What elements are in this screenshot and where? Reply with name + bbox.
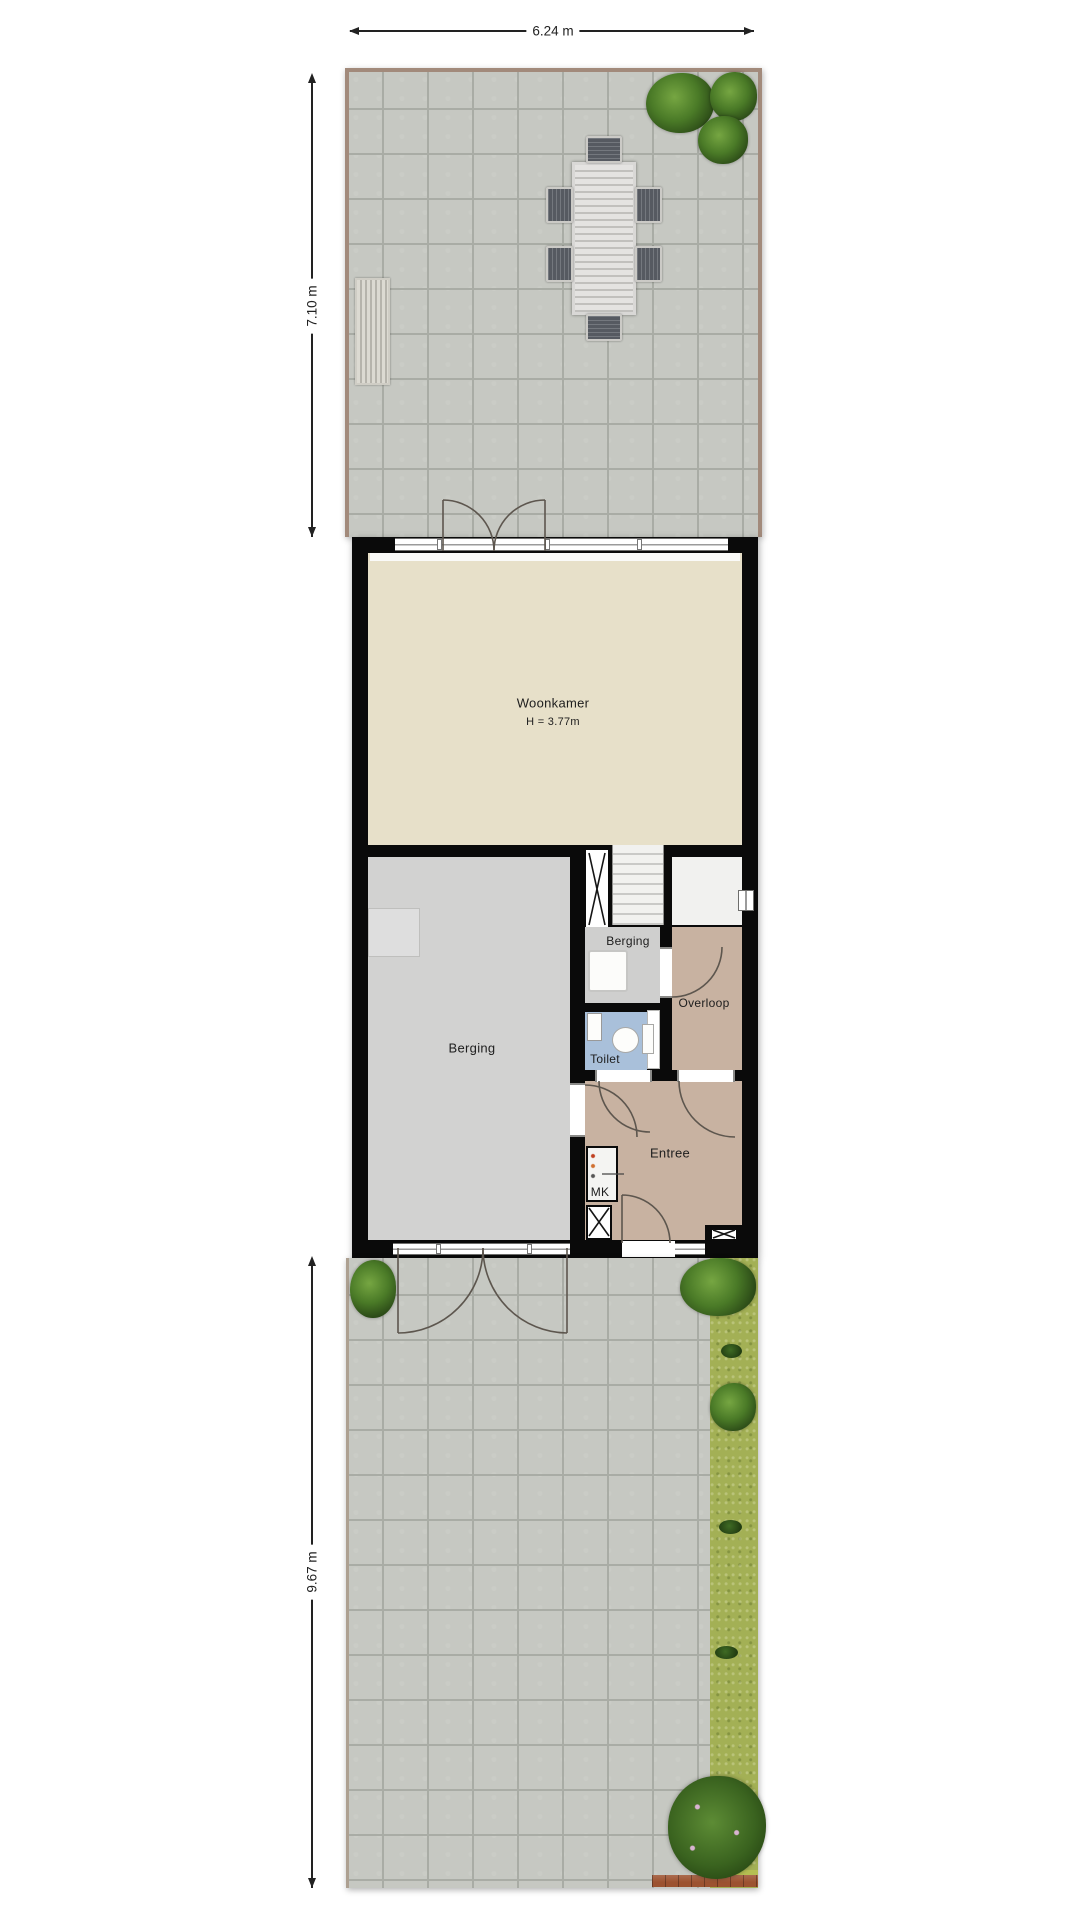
room-label-entree: Entree: [650, 1146, 690, 1161]
arrow-left-icon: [349, 27, 359, 35]
room-height-note: H = 3.77m: [526, 716, 580, 728]
window-mullion: [436, 1244, 441, 1254]
shaft-symbol: [586, 1205, 612, 1240]
garden-bench: [355, 278, 390, 385]
window-sill: [370, 553, 740, 561]
dimension-label-upper-garden: 7.10 m: [304, 278, 321, 333]
garden-chair: [586, 136, 622, 163]
upper-garden: [345, 68, 762, 537]
garden-chair: [546, 187, 573, 223]
dimension-label-width: 6.24 m: [526, 23, 579, 40]
shaft-symbol: [584, 848, 610, 930]
door-opening-toilet: [595, 1070, 652, 1082]
hall-closet: [672, 857, 742, 925]
plant-icon: [710, 1383, 756, 1431]
door-opening-overloop: [677, 1070, 735, 1082]
arrow-down-icon: [308, 1878, 316, 1888]
room-label-berging-large: Berging: [449, 1041, 496, 1056]
window-mullion: [545, 539, 550, 550]
hand-basin: [587, 1013, 602, 1041]
window-front-woonkamer: [395, 538, 728, 551]
dimension-label-lower-garden: 9.67 m: [304, 1544, 321, 1599]
shrub-icon: [715, 1646, 738, 1659]
plant-icon: [350, 1260, 396, 1318]
room-label-woonkamer: Woonkamer: [517, 696, 590, 711]
window-berging-rear: [393, 1243, 570, 1255]
arrow-up-icon: [308, 73, 316, 83]
door-opening-berging-small: [660, 947, 672, 998]
window-mullion: [527, 1244, 532, 1254]
plant-icon: [698, 116, 748, 164]
garden-chair: [635, 187, 662, 223]
shrub-icon: [721, 1344, 742, 1358]
washing-machine: [588, 950, 628, 992]
lower-garden: [346, 1258, 758, 1888]
garden-chair: [635, 246, 662, 282]
plant-icon: [680, 1258, 756, 1316]
dining-table: [572, 162, 636, 315]
staircase: [612, 845, 664, 925]
house: [352, 537, 758, 1258]
room-label-overloop: Overloop: [678, 996, 729, 1010]
toilet-bowl: [612, 1027, 639, 1053]
room-label-berging-small: Berging: [606, 934, 649, 948]
plant-icon: [710, 72, 757, 121]
room-label-meterkast: MK: [591, 1185, 610, 1199]
toilet-cistern: [642, 1024, 654, 1054]
workbench: [368, 908, 420, 957]
garden-chair: [586, 314, 622, 341]
garden-chair: [546, 246, 573, 282]
bush-icon: [668, 1776, 766, 1879]
letterbox-symbol: [710, 1228, 738, 1241]
arrow-up-icon: [308, 1256, 316, 1266]
window-mullion: [637, 539, 642, 550]
shrub-icon: [719, 1520, 742, 1534]
window-mullion: [437, 539, 442, 550]
room-label-toilet: Toilet: [590, 1052, 620, 1066]
window-front-door-side: [675, 1243, 705, 1255]
window-side-hall: [738, 890, 754, 911]
door-opening-berging: [570, 1083, 585, 1137]
arrow-down-icon: [308, 527, 316, 537]
arrow-right-icon: [744, 27, 754, 35]
front-door-opening: [622, 1241, 675, 1257]
